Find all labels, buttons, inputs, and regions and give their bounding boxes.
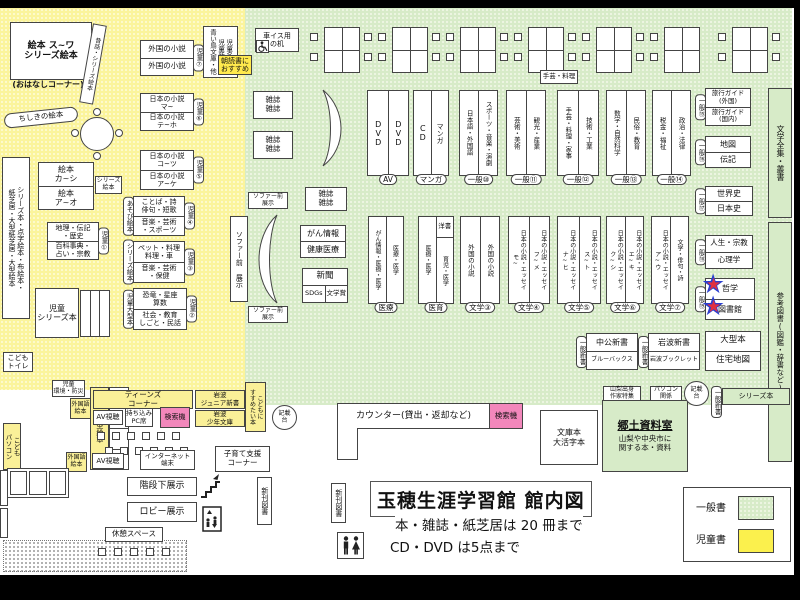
letterbox-bottom [0, 575, 800, 600]
shelf-general-17: 世界史日本史 一般⑰ [705, 186, 753, 216]
chair [432, 33, 440, 41]
cd-dvd-limit-note: CD・DVD は5点まで [390, 536, 520, 556]
chair [310, 53, 318, 61]
borrow-limit-note: 本・雑誌・紙芝居は 20 冊まで [395, 514, 583, 534]
byo-pc-seat: 持ち込み PC席 [125, 408, 153, 427]
chair [650, 53, 658, 61]
foreign-picture-books-shelf: 外国語 絵本 [70, 398, 91, 419]
wall-shelf [0, 470, 8, 506]
children-shelf-2: 恐竜・星座 算数社会・教育 しごと・民話 児童② 児童大型本 [133, 288, 187, 330]
new-books-shelf: 新刊図書 [331, 483, 346, 523]
shelf-general-19: 哲学図書館 一般⑲ [705, 278, 755, 320]
children-shelf-4: ことば・詩 俳句・短歌音楽・芸術 ・スポーツ 児童④ あそび絵本 [133, 196, 185, 236]
chair [93, 108, 101, 116]
chair [446, 33, 454, 41]
chair [172, 432, 180, 440]
children-shelf-6: 日本の小説 マ~日本の小説 テ~ホ 児童⑥ [140, 93, 194, 131]
picture-books-shelf: 絵本 カ~シ絵本 ア~オ [38, 162, 94, 210]
chair [432, 53, 440, 61]
chair [97, 432, 105, 440]
new-books-shelf: 新刊図書 [257, 477, 272, 525]
counter-leg [337, 428, 358, 460]
library-floor-map: 絵本 ス~ワ シリーズ絵本 (おはなしコーナー) 昔話・シリーズ絵本 ちしきの絵… [0, 0, 800, 600]
letterbox-right [794, 0, 800, 600]
recommended-for-kids-shelf: こどもに すすめたい本 [245, 382, 266, 432]
bench-table [7, 468, 69, 498]
curved-sofa [251, 211, 287, 307]
wheelchair-icon [256, 40, 269, 53]
study-table [392, 27, 428, 73]
round-table [80, 117, 114, 151]
iwanami-shonen-bunko-shelf: 岩波 少年文庫 [195, 410, 245, 427]
paperback-large-print-shelf: 文庫本 大活字本 [540, 410, 598, 465]
children-environment-shelf: 児童 環境・防災 [52, 380, 85, 397]
chair [772, 53, 780, 61]
study-table [732, 27, 768, 73]
shelf-general-11: 芸術・美術 観光・産業 一般⑪ [506, 90, 546, 176]
kids-toilet: こども トイレ [3, 352, 33, 372]
shelf-general-15: 旅行ガイド (外国)旅行ガイド (国内) 一般⑮ [705, 88, 751, 126]
lobby-display: ロビー展示 [127, 502, 197, 522]
empty-shelf [80, 290, 110, 337]
chair [93, 152, 101, 160]
chair [378, 33, 386, 41]
foreign-picture-books-shelf: 外国語 絵本 [66, 452, 87, 472]
chuko-shinsho-shelf: 中公新書 ブルーバックス 一般新書 [586, 333, 638, 370]
series-ehon-tag: シリーズ 絵本 [95, 176, 122, 194]
handicraft-cooking-mini-shelf: 手芸・料理 [540, 70, 578, 84]
under-stairs-display: 階段下展示 [127, 477, 197, 496]
shelf-cd-manga: CD マンガ マンガ [413, 90, 449, 176]
shelf-literature-5: 日本の小説・エッセイ ナ~ヒ 日本の小説・エッセイ ス~ト 文学⑤ [557, 216, 601, 304]
av-seat: AV視聴 [92, 453, 124, 469]
shelf-general-13: 数学・自然科学 民俗・教育 一般⑬ [606, 90, 646, 176]
chair [127, 432, 135, 440]
morning-reading-recommendation: 朝読書に おすすめ [218, 55, 252, 75]
chair [446, 53, 454, 61]
study-table [664, 27, 700, 73]
stool [162, 548, 170, 556]
stool [130, 548, 138, 556]
av-seat: AV視聴 [93, 410, 123, 425]
legend-general-swatch [738, 496, 774, 520]
shelf-medical: がん情報・医療・医学 医療・医学 医療 [368, 216, 404, 304]
shelf-general-12: 手芸・料理・家事 技術・工業 一般⑫ [557, 90, 599, 176]
chair [636, 53, 644, 61]
legend-general-label: 一般書 [696, 503, 726, 515]
series-books-shelf: シリーズ本 [722, 388, 790, 405]
chair [514, 53, 522, 61]
chair [718, 53, 726, 61]
map-title: 玉穂生涯学習館 館内図 [370, 481, 592, 517]
restroom-icon [337, 532, 364, 559]
newspaper-shelf: 新聞 SDGs 文学賞 [302, 268, 348, 303]
iwanami-shinsho-shelf: 岩波新書 岩波ブックレット 一般新書 [648, 333, 700, 370]
reference-books-shelf: 参考図書(図鑑・辞書など) [768, 222, 792, 462]
chair [636, 33, 644, 41]
cancer-info-health-shelf: がん情報健康医療 [300, 225, 346, 258]
chair [142, 432, 150, 440]
chair [568, 53, 576, 61]
shelf-general-14: 税金・福祉 政治・法律 一般⑭ [652, 90, 691, 176]
chair [364, 53, 372, 61]
study-table [528, 27, 564, 73]
chair [115, 129, 123, 137]
kids-computer: こども パソコン [3, 423, 21, 470]
shelf-av: DVD DVD AV [367, 90, 409, 176]
chair [500, 53, 508, 61]
picture-books-ohanashi-shelf: 絵本 ス~ワ シリーズ絵本 [10, 22, 92, 80]
shelf-general-10: 日本語・外国語 スポーツ・音楽・演劇 一般⑩ [459, 90, 498, 176]
shelf-general-16: 地図伝記 一般⑯ [705, 136, 751, 168]
children-shelf-1: 地理・伝記 ・歴史百科事典・ 占い・宗教 児童① [47, 222, 99, 260]
circulation-counter: カウンター(貸出・返却など) [337, 403, 490, 429]
chair [71, 129, 79, 137]
letterbox-top [0, 0, 800, 8]
chair [157, 432, 165, 440]
shelf-literature-3: 外国の小説 外国の小説 文学③ [460, 216, 500, 304]
children-shelf-7: 外国の小説外国の小説 児童⑦ [140, 40, 194, 76]
rest-space-label: 休憩スペース [105, 527, 163, 542]
general-shinsho-tag: 一般新書 [711, 386, 722, 418]
writing-desk: 記載 台 [684, 381, 709, 406]
search-terminal: 検索機 [160, 407, 190, 428]
stool [98, 548, 106, 556]
internet-terminal: インターネット 端末 [140, 450, 195, 470]
writing-desk: 記載 台 [272, 405, 297, 430]
rest-space-area [3, 540, 187, 572]
magazine-shelf: 雑誌 雑誌 [305, 187, 347, 211]
sofa-front-display: ソファー前 展示 [230, 216, 248, 302]
stairs-icon [199, 473, 221, 499]
kamishibai-braille-books-shelf: シリーズ本・点字絵本・布絵本・ 紙芝居・大型紙芝居・大型絵本 [2, 157, 30, 319]
wall-shelf [0, 508, 8, 538]
study-table [596, 27, 632, 73]
ohanashi-corner-label: (おはなしコーナー) [2, 80, 94, 89]
chair [112, 432, 120, 440]
magazine-shelf: 雑誌 雑誌 [253, 131, 293, 159]
study-table [324, 27, 360, 73]
children-shelf-3: ペット・料理 料理・車音楽・芸術 ・保健 児童③ シリーズ絵本 [133, 241, 185, 283]
shelf-general-18: 人生・宗教心理学 一般⑱ [705, 235, 753, 269]
legend: 一般書 児童書 [683, 487, 791, 562]
study-table [460, 27, 496, 73]
sofa-front-display: ソファー前 展示 [248, 306, 288, 323]
chair [378, 53, 386, 61]
chair [514, 33, 522, 41]
large-books-shelf: 大型本住宅地図 [705, 331, 761, 371]
chair [310, 33, 318, 41]
chair [582, 53, 590, 61]
iwanami-junior-shinsho-shelf: 岩波 ジュニア新書 [195, 390, 245, 409]
childcare-support-corner: 子育て支援 コーナー [215, 446, 270, 472]
children-series-books-shelf: 児童 シリーズ本 [35, 288, 79, 338]
legend-children-label: 児童書 [696, 535, 726, 547]
chair [568, 33, 576, 41]
search-terminal: 検索機 [489, 403, 523, 429]
chair [772, 33, 780, 41]
chair [500, 33, 508, 41]
chair [582, 33, 590, 41]
sofa-front-display: ソファー前 展示 [248, 192, 288, 209]
curved-sofa [313, 86, 357, 170]
legend-children-swatch [738, 529, 774, 553]
literature-collections-shelf: 文学全集・叢書 [768, 88, 792, 218]
elevator-icon [202, 506, 222, 532]
chair [364, 33, 372, 41]
magazine-shelf: 雑誌 雑誌 [253, 91, 293, 119]
shelf-literature-7: 日本の小説・エッセイ ア~ウ 文学・俳句・詩 文学⑦ [651, 216, 689, 304]
shelf-literature-4: 日本の小説・エッセイ モ~ 日本の小説・エッセイ フ~メ 文学④ [508, 216, 550, 304]
stool [114, 548, 122, 556]
children-shelf-5: 日本の小説 コ~ツ日本の小説 ア~ケ 児童⑤ [140, 150, 194, 190]
stool [146, 548, 154, 556]
shelf-literature-6: 日本の小説・エッセイ ク~シ 日本の小説・エッセイ エ~キ 文学⑥ [606, 216, 644, 304]
shelf-medical-childcare: 医療・医学 洋書 育児・医学 医育 [418, 216, 454, 304]
local-history-room: 郷土資料室 山梨や中央市に 関する本・資料 [602, 400, 688, 472]
chair [718, 33, 726, 41]
chair [650, 33, 658, 41]
